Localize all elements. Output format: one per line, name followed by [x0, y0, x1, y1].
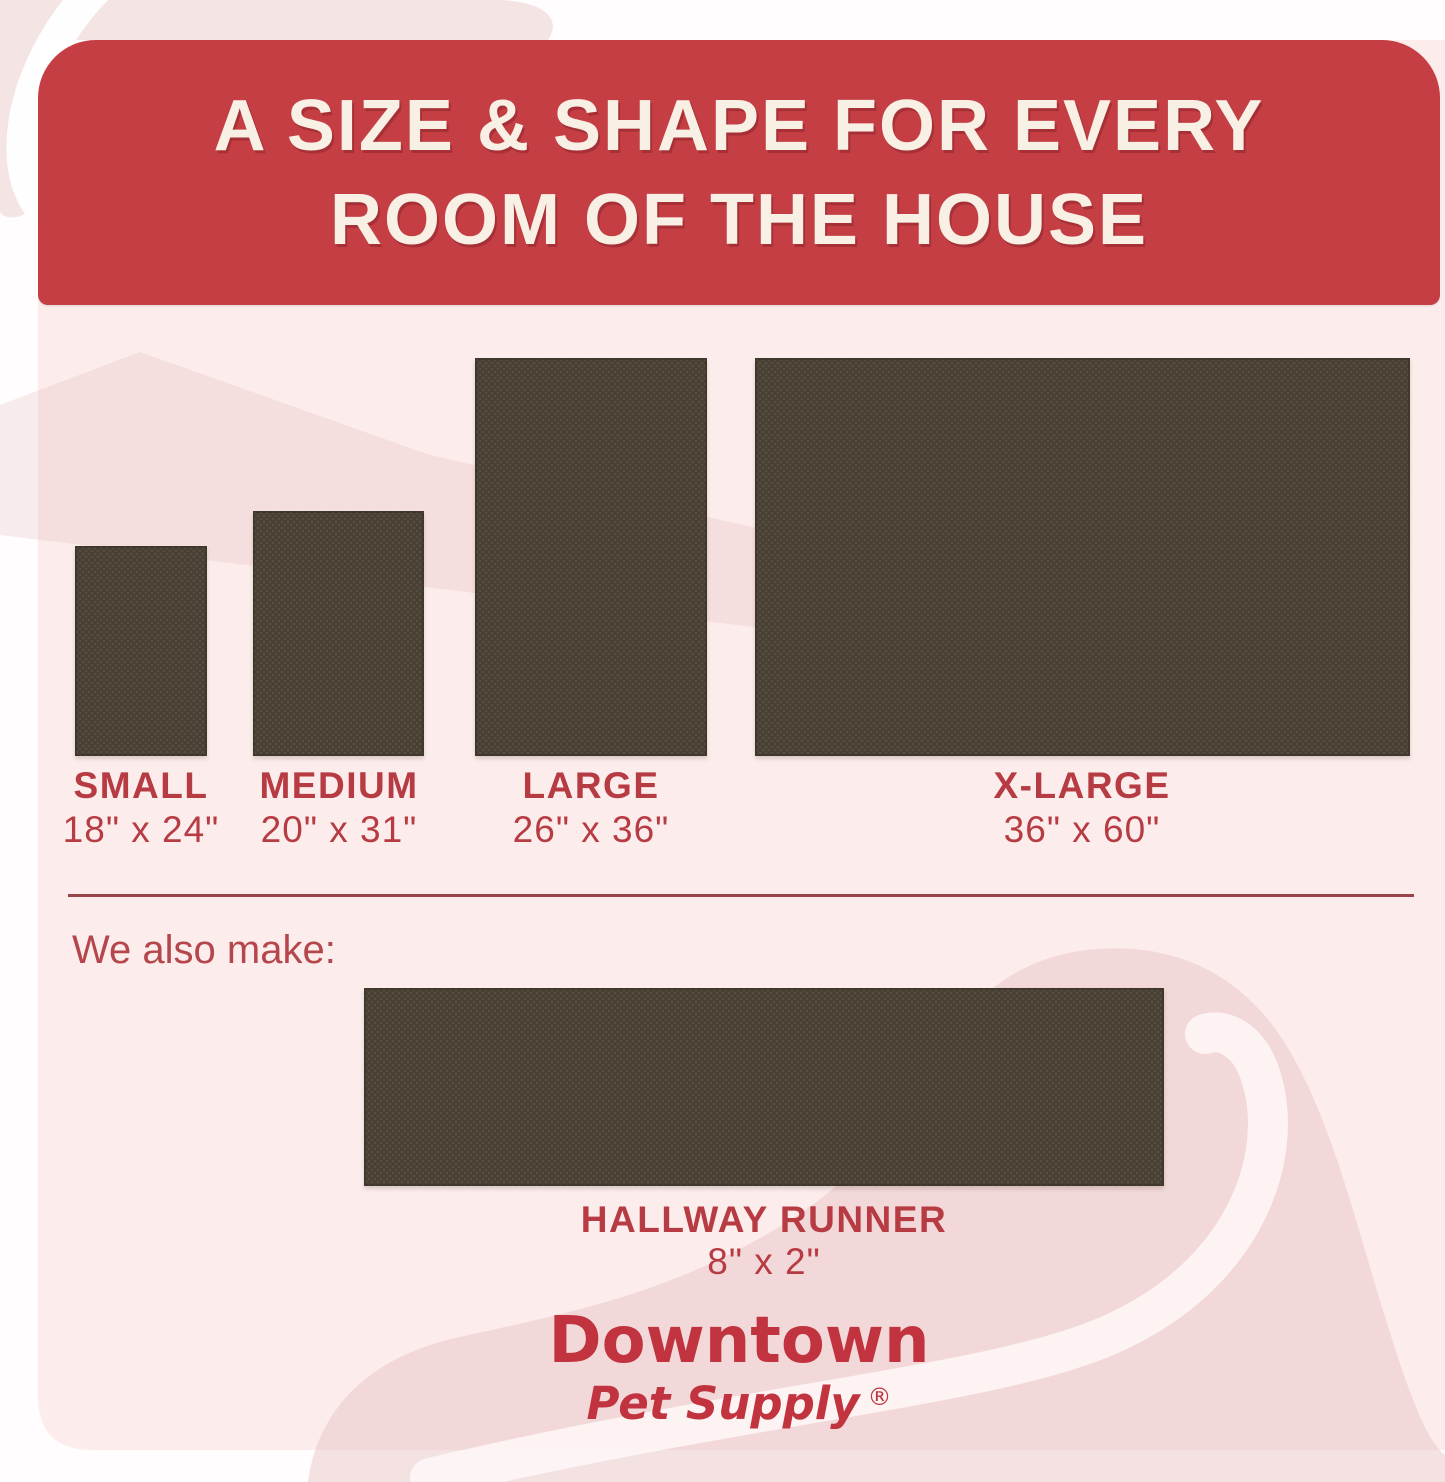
runner-dims: 8" x 2"	[581, 1242, 947, 1282]
size-name-small: SMALL	[63, 766, 220, 806]
infographic-canvas: A SIZE & SHAPE FOR EVERY ROOM OF THE HOU…	[0, 0, 1445, 1482]
section-divider	[68, 894, 1414, 897]
size-dims-large: 26" x 36"	[513, 810, 670, 850]
brand-sub-text: Pet Supply	[586, 1377, 859, 1430]
runner-name: HALLWAY RUNNER	[581, 1200, 947, 1240]
mat-large	[475, 358, 707, 756]
brand-logo: Downtown Pet Supply®	[548, 1306, 929, 1437]
size-dims-medium: 20" x 31"	[259, 810, 418, 850]
mat-small	[75, 546, 207, 756]
size-label-xlarge: X-LARGE 36" x 60"	[994, 766, 1171, 850]
also-make-label: We also make:	[72, 928, 336, 972]
size-label-medium: MEDIUM 20" x 31"	[259, 766, 418, 850]
mat-xlarge	[755, 358, 1410, 756]
size-name-large: LARGE	[513, 766, 670, 806]
size-label-small: SMALL 18" x 24"	[63, 766, 220, 850]
runner-label: HALLWAY RUNNER 8" x 2"	[581, 1200, 947, 1282]
mat-hallway-runner	[364, 988, 1164, 1186]
brand-subtitle: Pet Supply®	[548, 1378, 929, 1437]
size-label-large: LARGE 26" x 36"	[513, 766, 670, 850]
header-banner: A SIZE & SHAPE FOR EVERY ROOM OF THE HOU…	[38, 40, 1440, 305]
brand-name: Downtown	[548, 1306, 929, 1376]
header-title-line1: A SIZE & SHAPE FOR EVERY	[214, 79, 1265, 173]
mat-medium	[253, 511, 424, 756]
header-title-line2: ROOM OF THE HOUSE	[330, 173, 1148, 267]
registered-mark-icon: ®	[868, 1383, 892, 1411]
size-dims-xlarge: 36" x 60"	[994, 810, 1171, 850]
size-name-xlarge: X-LARGE	[994, 766, 1171, 806]
size-name-medium: MEDIUM	[259, 766, 418, 806]
size-dims-small: 18" x 24"	[63, 810, 220, 850]
